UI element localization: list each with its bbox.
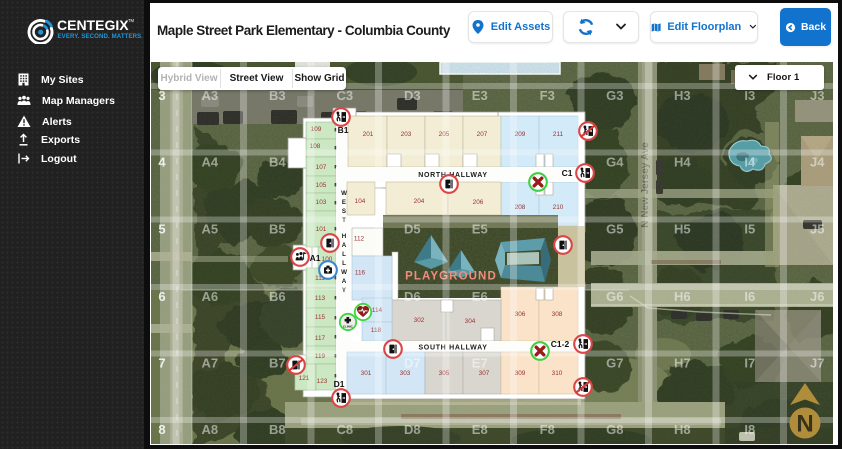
svg-text:I4: I4 xyxy=(744,155,756,170)
svg-text:W: W xyxy=(341,190,347,197)
svg-text:116: 116 xyxy=(355,270,366,277)
svg-text:A6: A6 xyxy=(201,289,218,304)
svg-text:F3: F3 xyxy=(540,88,555,103)
svg-text:104: 104 xyxy=(355,198,366,205)
svg-text:6: 6 xyxy=(158,289,165,304)
svg-text:J4: J4 xyxy=(810,155,825,170)
svg-text:CENTEGIX: CENTEGIX xyxy=(57,17,129,33)
svg-text:E6: E6 xyxy=(472,289,488,304)
svg-text:E5: E5 xyxy=(472,222,488,237)
svg-text:117: 117 xyxy=(315,335,326,342)
svg-text:210: 210 xyxy=(553,204,564,211)
svg-text:J7: J7 xyxy=(810,356,824,371)
svg-text:8: 8 xyxy=(158,422,165,437)
svg-text:E7: E7 xyxy=(472,356,488,371)
svg-text:308: 308 xyxy=(552,311,563,318)
svg-text:B6: B6 xyxy=(269,289,286,304)
svg-text:112: 112 xyxy=(354,236,365,243)
svg-text:115: 115 xyxy=(315,314,326,321)
svg-text:C1-2: C1-2 xyxy=(551,339,570,349)
svg-text:204: 204 xyxy=(414,198,425,205)
svg-text:J6: J6 xyxy=(810,289,824,304)
svg-text:A5: A5 xyxy=(201,222,218,237)
svg-text:E8: E8 xyxy=(472,422,488,437)
svg-text:D7: D7 xyxy=(404,356,421,371)
svg-text:H8: H8 xyxy=(674,422,691,437)
svg-text:A7: A7 xyxy=(201,356,218,371)
svg-text:L: L xyxy=(342,251,346,258)
svg-text:105: 105 xyxy=(316,182,327,189)
svg-text:H5: H5 xyxy=(674,222,691,237)
svg-text:307: 307 xyxy=(479,370,490,377)
svg-text:G4: G4 xyxy=(606,155,624,170)
svg-text:G3: G3 xyxy=(606,88,623,103)
svg-text:CLINIC: CLINIC xyxy=(343,324,354,328)
svg-text:304: 304 xyxy=(465,318,476,325)
svg-text:H7: H7 xyxy=(674,356,691,371)
svg-text:101: 101 xyxy=(316,226,327,233)
svg-text:E: E xyxy=(342,199,346,206)
svg-text:D6: D6 xyxy=(404,289,421,304)
svg-text:I5: I5 xyxy=(744,222,755,237)
svg-text:C3: C3 xyxy=(336,88,353,103)
svg-text:B7: B7 xyxy=(269,356,286,371)
svg-text:B3: B3 xyxy=(269,88,286,103)
svg-text:C8: C8 xyxy=(336,422,353,437)
svg-text:I8: I8 xyxy=(744,422,755,437)
svg-text:A: A xyxy=(342,278,347,285)
svg-text:H4: H4 xyxy=(674,155,691,170)
svg-text:D3: D3 xyxy=(404,88,421,103)
svg-text:5: 5 xyxy=(158,222,165,237)
svg-text:I7: I7 xyxy=(744,356,755,371)
svg-text:G6: G6 xyxy=(606,289,623,304)
svg-text:3: 3 xyxy=(158,88,165,103)
svg-text:S: S xyxy=(342,208,346,215)
svg-text:C1: C1 xyxy=(562,168,573,178)
svg-text:J3: J3 xyxy=(810,88,824,103)
svg-text:A: A xyxy=(342,242,347,249)
svg-text:G7: G7 xyxy=(606,356,623,371)
svg-text:A1: A1 xyxy=(310,253,321,263)
svg-text:4: 4 xyxy=(158,155,166,170)
svg-text:123: 123 xyxy=(317,378,328,385)
svg-text:TM: TM xyxy=(128,18,135,23)
svg-text:EVERY. SECOND. MATTERS.: EVERY. SECOND. MATTERS. xyxy=(58,33,143,40)
svg-text:H: H xyxy=(342,233,347,240)
svg-text:E3: E3 xyxy=(472,88,488,103)
svg-text:I6: I6 xyxy=(744,289,755,304)
svg-text:7: 7 xyxy=(158,356,165,371)
svg-text:103: 103 xyxy=(316,199,327,206)
svg-text:N: N xyxy=(796,411,813,438)
svg-text:D8: D8 xyxy=(404,422,421,437)
svg-text:206: 206 xyxy=(473,199,484,206)
svg-text:B5: B5 xyxy=(269,222,286,237)
svg-text:J5: J5 xyxy=(810,222,824,237)
svg-text:B8: B8 xyxy=(269,422,286,437)
svg-text:A3: A3 xyxy=(201,88,218,103)
svg-text:PLAYGROUND: PLAYGROUND xyxy=(405,271,497,283)
svg-text:310: 310 xyxy=(552,370,563,377)
svg-text:L: L xyxy=(342,260,346,267)
svg-text:W: W xyxy=(341,269,347,276)
svg-text:113: 113 xyxy=(315,295,326,302)
svg-text:301: 301 xyxy=(361,370,372,377)
svg-text:D1: D1 xyxy=(334,379,345,389)
svg-text:A8: A8 xyxy=(201,422,218,437)
svg-text:207: 207 xyxy=(477,131,488,138)
svg-text:I3: I3 xyxy=(744,88,755,103)
svg-text:203: 203 xyxy=(401,131,412,138)
svg-text:211: 211 xyxy=(553,131,564,138)
svg-text:D5: D5 xyxy=(404,222,421,237)
svg-text:F8: F8 xyxy=(540,422,555,437)
svg-text:H3: H3 xyxy=(674,88,691,103)
svg-text:SOUTH HALLWAY: SOUTH HALLWAY xyxy=(418,345,487,352)
svg-text:G8: G8 xyxy=(606,422,623,437)
svg-text:302: 302 xyxy=(414,317,425,324)
svg-text:201: 201 xyxy=(363,131,374,138)
svg-text:303: 303 xyxy=(400,370,411,377)
svg-text:107: 107 xyxy=(316,164,327,171)
svg-text:H6: H6 xyxy=(674,289,691,304)
svg-text:G5: G5 xyxy=(606,222,623,237)
svg-text:A4: A4 xyxy=(201,155,218,170)
svg-text:B4: B4 xyxy=(269,155,286,170)
